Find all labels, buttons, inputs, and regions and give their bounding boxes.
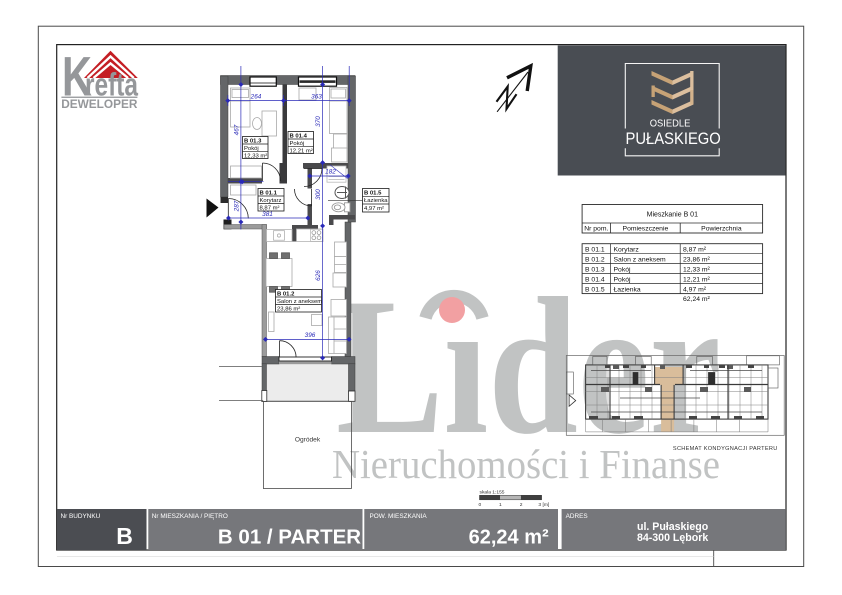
svg-text:381: 381 — [262, 211, 273, 218]
svg-text:Nr pom.: Nr pom. — [584, 226, 608, 233]
svg-text:12,33 m²: 12,33 m² — [683, 266, 711, 273]
svg-text:8,87 m²: 8,87 m² — [683, 246, 707, 253]
svg-text:Pokój: Pokój — [614, 276, 631, 283]
svg-text:B 01.5: B 01.5 — [364, 190, 382, 196]
svg-text:Nr BUDYNKU: Nr BUDYNKU — [61, 513, 101, 520]
svg-text:8,87 m²: 8,87 m² — [260, 205, 280, 211]
svg-text:Nieruchomości i Finanse: Nieruchomości i Finanse — [332, 441, 720, 487]
svg-text:287: 287 — [234, 200, 241, 212]
svg-text:Salon z aneksem: Salon z aneksem — [614, 256, 666, 263]
svg-text:0: 0 — [479, 502, 482, 508]
svg-text:1: 1 — [499, 502, 502, 508]
svg-text:84-300 Lębork: 84-300 Lębork — [637, 532, 708, 544]
svg-text:23,86 m²: 23,86 m² — [683, 256, 711, 263]
svg-text:Łazienka: Łazienka — [364, 198, 388, 204]
svg-text:Pokój: Pokój — [244, 146, 259, 152]
svg-text:DEWELOPER: DEWELOPER — [61, 97, 137, 111]
svg-text:23,86 m²: 23,86 m² — [277, 306, 300, 312]
svg-text:Łazienka: Łazienka — [614, 286, 641, 293]
svg-text:12,21 m²: 12,21 m² — [290, 148, 313, 154]
svg-text:300: 300 — [315, 189, 322, 200]
svg-text:3 [m]: 3 [m] — [538, 502, 550, 508]
svg-text:12,33 m²: 12,33 m² — [244, 153, 267, 159]
svg-text:PUŁASKIEGO: PUŁASKIEGO — [626, 129, 721, 148]
svg-text:12,21 m²: 12,21 m² — [683, 276, 711, 283]
svg-text:Pokój: Pokój — [290, 141, 305, 147]
svg-text:Korytarz: Korytarz — [614, 246, 640, 253]
svg-text:2: 2 — [520, 502, 523, 508]
svg-text:B 01.5: B 01.5 — [585, 286, 605, 293]
svg-text:POW. MIESZKANIA: POW. MIESZKANIA — [370, 513, 428, 520]
svg-text:Pomieszczenie: Pomieszczenie — [623, 226, 669, 233]
svg-text:Pokój: Pokój — [614, 266, 631, 273]
svg-text:4,97 m²: 4,97 m² — [683, 286, 707, 293]
svg-text:SCHEMAT KONDYGNACJI PARTERU: SCHEMAT KONDYGNACJI PARTERU — [673, 446, 778, 452]
svg-text:B 01.1: B 01.1 — [260, 190, 278, 196]
svg-text:B 01.4: B 01.4 — [585, 276, 605, 283]
svg-text:Mieszkanie B 01: Mieszkanie B 01 — [647, 212, 698, 219]
svg-text:370: 370 — [315, 116, 322, 127]
svg-text:B 01.1: B 01.1 — [585, 246, 605, 253]
svg-text:396: 396 — [305, 332, 316, 339]
svg-text:ADRES: ADRES — [566, 513, 588, 520]
svg-text:B 01.3: B 01.3 — [244, 138, 262, 144]
svg-text:Salon z aneksem: Salon z aneksem — [277, 299, 322, 305]
svg-text:62,24 m²: 62,24 m² — [469, 527, 549, 549]
svg-text:Ogródek: Ogródek — [295, 437, 321, 444]
svg-text:Powierzchnia: Powierzchnia — [701, 226, 742, 233]
svg-text:B 01 / PARTER: B 01 / PARTER — [218, 526, 361, 549]
svg-text:264: 264 — [250, 94, 262, 101]
svg-text:467: 467 — [234, 124, 241, 135]
svg-text:B 01.2: B 01.2 — [277, 291, 295, 297]
svg-text:626: 626 — [315, 270, 322, 281]
svg-text:skala 1:155: skala 1:155 — [480, 490, 505, 496]
svg-text:Nr MIESZKANIA / PIĘTRO: Nr MIESZKANIA / PIĘTRO — [152, 513, 228, 520]
svg-text:4,97 m²: 4,97 m² — [364, 206, 384, 212]
svg-text:B 01.2: B 01.2 — [585, 256, 605, 263]
svg-text:182: 182 — [325, 169, 336, 176]
svg-text:B 01.3: B 01.3 — [585, 266, 605, 273]
svg-text:363: 363 — [311, 94, 322, 101]
svg-text:B: B — [116, 523, 133, 549]
svg-text:B 01.4: B 01.4 — [290, 133, 308, 139]
svg-text:Korytarz: Korytarz — [260, 198, 282, 204]
svg-text:62,24 m²: 62,24 m² — [683, 296, 711, 303]
